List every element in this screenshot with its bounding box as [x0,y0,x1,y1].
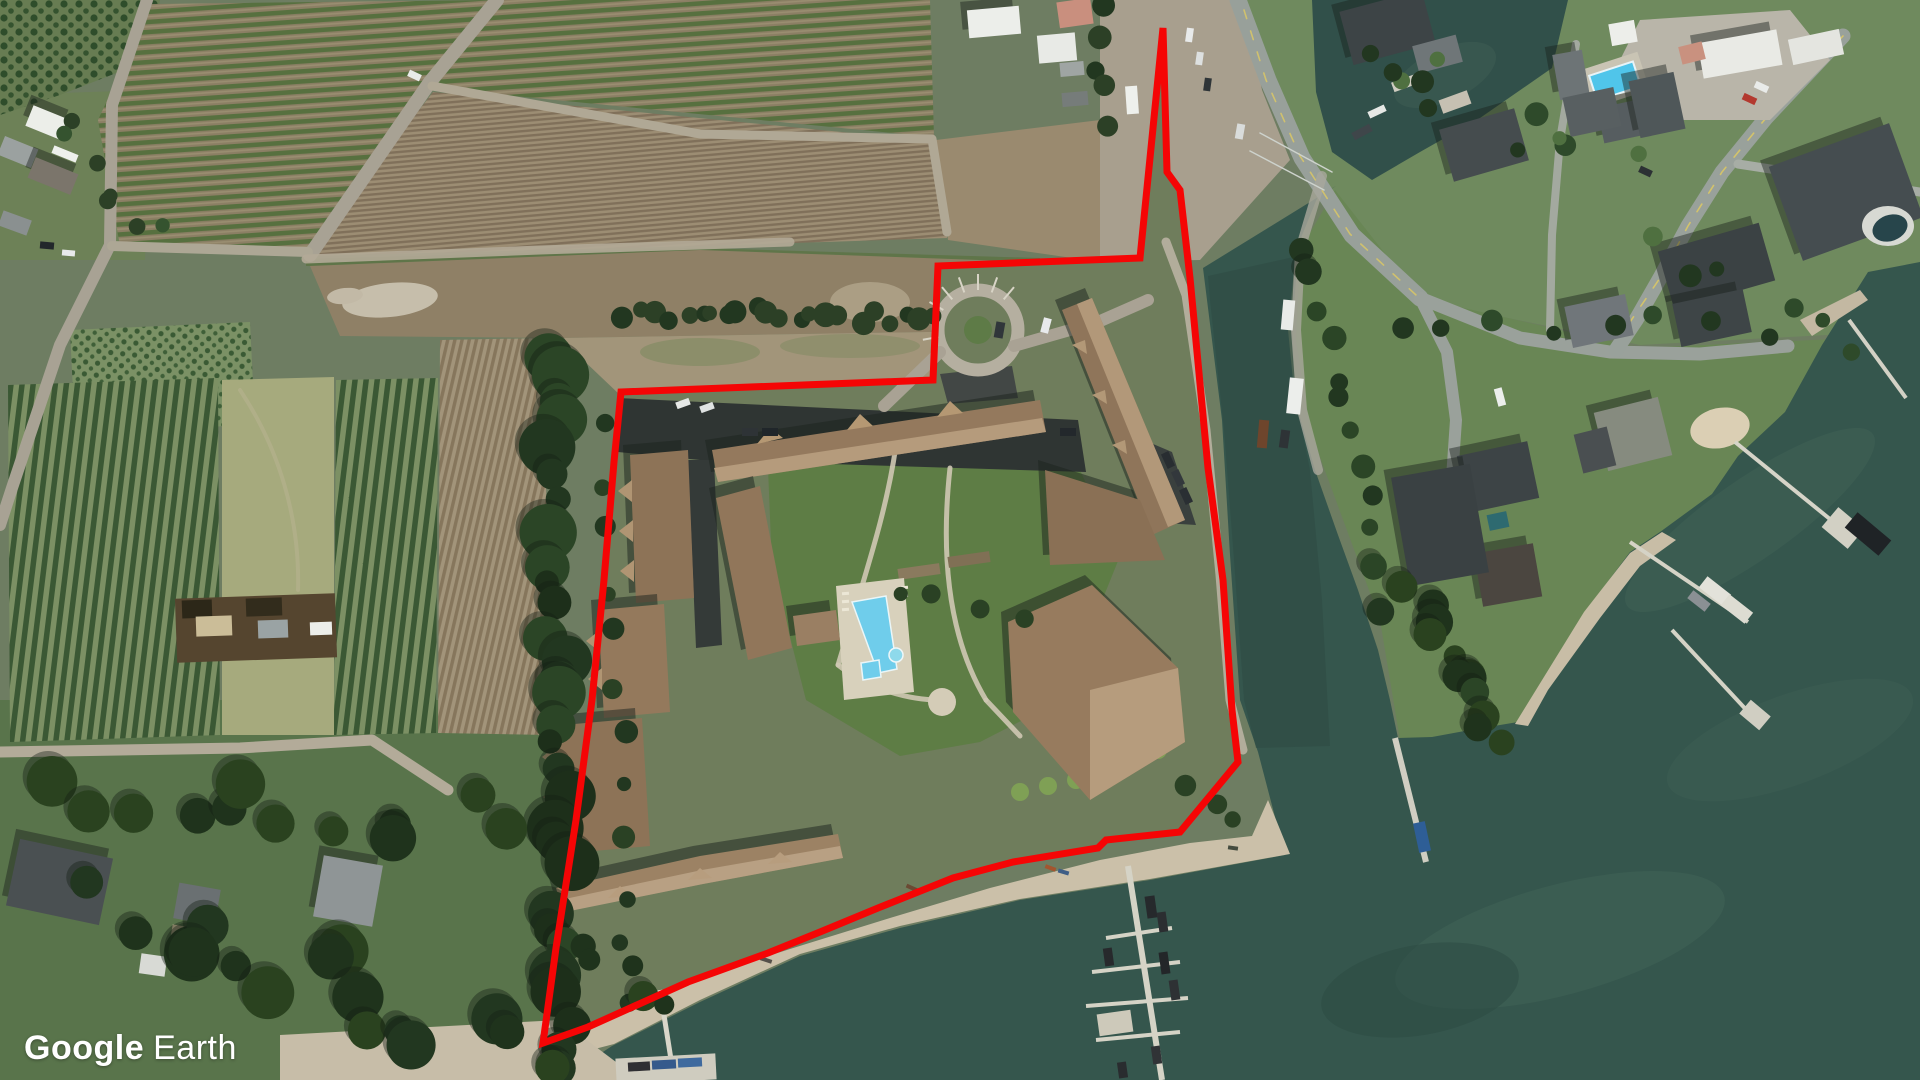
plaza-circle [928,688,956,716]
tree-row-west [537,459,568,490]
trees-channel-bank [1342,422,1359,439]
trees-resort-west [617,777,631,791]
residential-trees-west [155,218,169,232]
vineyard-west [8,378,220,742]
trees-resort-west [612,826,635,849]
vehicle [1060,428,1076,436]
watermark-brand: Google [24,1029,144,1067]
trees-resort-west [612,934,629,951]
vehicle [40,241,55,249]
trees-channel-bank [1366,598,1394,626]
gravel-lot-trees [1088,26,1112,50]
pool-lounger [842,592,849,596]
trees-southwest [241,966,294,1019]
animal-shelter [182,599,213,618]
hedge-north [827,305,847,325]
trees-southwest [485,808,527,850]
hedge-north [723,300,746,323]
courtyard-trees [922,584,941,603]
street-trees-waterfront [1432,320,1449,337]
connector-road [112,246,308,252]
trees-channel-bank [1351,455,1375,479]
trees-channel-bank [1322,326,1346,350]
trees-southwest [67,790,109,832]
beach-corner-trees [622,955,643,976]
farm-shed [1061,91,1088,107]
pool-lounger [842,608,849,612]
corner-lawn-trees [1175,775,1196,796]
pond-trees [1362,45,1379,62]
street-trees-northeast [1525,102,1549,126]
street-trees-waterfront [1643,306,1662,325]
residential-trees-west [103,189,117,203]
trees-southwest [387,1020,436,1069]
farm-trailer [1059,61,1084,77]
marina-platform [1097,1010,1134,1037]
house-roof [313,855,383,926]
lawn-scallop [1039,777,1057,795]
hedge-north [769,309,787,327]
trees-channel-bank [1328,387,1348,407]
trees-shore [1489,730,1515,756]
hedge-north [864,301,884,321]
trees-southwest [490,1015,524,1049]
watermark-product: Earth [153,1029,237,1067]
street-trees-northeast [1843,344,1860,361]
trees-channel-bank [1363,485,1383,505]
pool-lounger [842,600,849,604]
street-trees-northeast [1679,264,1702,287]
vineyard-east [334,378,438,735]
street-trees-waterfront [1815,313,1830,328]
hedge-north [702,306,717,321]
boat [628,1061,650,1071]
farm-shed-white [1037,32,1077,63]
google-earth-viewport[interactable]: GoogleEarth [0,0,1920,1080]
boat [652,1059,676,1069]
street-trees-waterfront [1481,310,1503,332]
street-trees-waterfront [1761,329,1778,346]
trees-southwest [119,916,153,950]
street-trees-northeast [1643,227,1663,247]
grass-patch [640,338,760,366]
corner-lawn-trees [1224,811,1240,827]
trees-southwest [70,866,103,899]
street-trees-northeast [1631,146,1647,162]
street-trees-waterfront [1392,317,1414,339]
trees-southwest [348,1011,386,1049]
beach-corner-trees [578,949,600,971]
satellite-imagery [0,0,1920,1080]
trees-channel-bank [1307,302,1327,322]
pond-trees [1419,99,1437,117]
animal-shelter [246,597,283,616]
trees-shore [1464,713,1492,741]
google-earth-watermark: GoogleEarth [24,1029,237,1068]
grass-patch [780,334,920,358]
resort-building-west1 [630,450,694,603]
hedge-north [682,307,699,324]
trees-shore [1386,571,1418,603]
trees-resort-west [596,414,614,432]
street-trees-northeast [1784,298,1803,317]
courtyard-trees [971,600,990,619]
hedge-north [659,311,678,330]
pasture [222,377,334,735]
trees-resort-west [602,679,622,699]
street-trees-northeast [1709,261,1724,276]
street-trees-northeast [1552,131,1566,145]
trees-resort-west [602,618,624,640]
swimming-pool-step [861,660,881,680]
vehicle [62,249,75,256]
hot-tub [889,648,903,662]
courtyard-trees [1015,610,1033,628]
trees-southwest [370,815,416,861]
gravel-lot-trees [1097,116,1118,137]
trees-resort-west [615,720,638,743]
street-trees-northeast [1510,142,1525,157]
driveway-island [964,316,992,344]
trees-southwest [256,804,294,842]
courtyard-trees [894,587,908,601]
vehicle [762,428,778,436]
trees-southwest [216,759,265,808]
hedge-north [611,307,633,329]
rv-white [1125,86,1139,115]
street-trees-waterfront [1701,311,1721,331]
white-canopy [1608,20,1637,46]
trees-shore [1414,618,1447,651]
trailer [310,622,332,636]
satellite-map-canvas[interactable] [0,0,1920,1080]
farm-shed-white [967,6,1021,38]
trees-resort-west [619,891,636,908]
trees-southwest [114,794,153,833]
lawn-scallop [1011,783,1029,801]
street-trees-northeast [1430,52,1445,67]
street-trees-waterfront [1546,326,1561,341]
pink-roof-stand [1056,0,1093,28]
pond-trees [1411,70,1434,93]
vehicle [742,428,758,436]
trees-channel-bank [1360,553,1387,580]
farmyard [936,120,1100,262]
gravel-lot-trees [1094,74,1116,96]
trees-southwest [318,816,348,846]
boat [678,1057,702,1067]
street-trees-waterfront [1605,315,1626,336]
tarp [258,619,289,638]
pool-house [793,610,840,646]
trees-southwest [169,927,218,976]
residential-trees-west [129,218,146,235]
trees-channel-bank [1361,519,1378,536]
tarp [196,615,233,636]
pond-trees [1384,63,1402,81]
residential-trees-west [56,126,72,142]
hedge-north [882,315,899,332]
trees-channel-bank [1295,258,1322,285]
residential-trees-west [89,155,106,172]
